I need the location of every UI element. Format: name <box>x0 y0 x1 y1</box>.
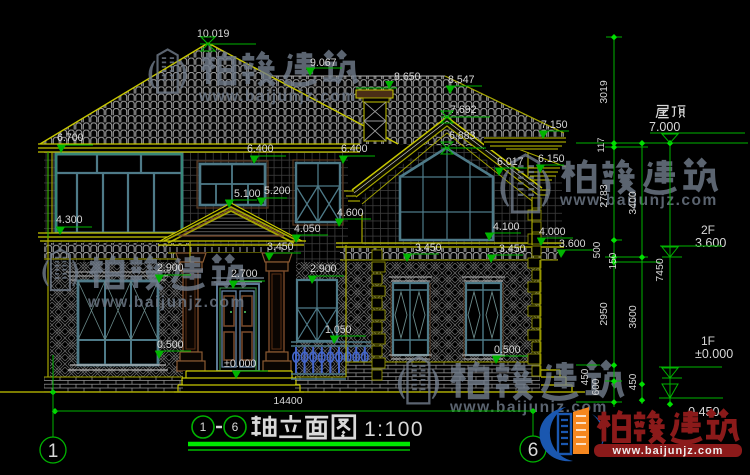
svg-text:6.700: 6.700 <box>57 132 84 144</box>
svg-text:450: 450 <box>580 368 591 385</box>
svg-text:3.450: 3.450 <box>267 241 294 253</box>
svg-text:6.400: 6.400 <box>247 143 274 155</box>
svg-text:2.700: 2.700 <box>231 268 258 280</box>
svg-text:3.450: 3.450 <box>499 243 526 255</box>
svg-text:6: 6 <box>232 420 239 434</box>
svg-text:www.baijunjz.com: www.baijunjz.com <box>198 88 357 105</box>
svg-text:2950: 2950 <box>598 302 610 326</box>
svg-text:7.692: 7.692 <box>450 104 477 116</box>
svg-text:117: 117 <box>596 137 607 152</box>
svg-text:5.200: 5.200 <box>264 185 291 197</box>
svg-text:7.150: 7.150 <box>541 119 568 131</box>
svg-text:3.600: 3.600 <box>559 238 586 250</box>
svg-text:1.050: 1.050 <box>325 324 352 336</box>
svg-text:7450: 7450 <box>654 258 666 282</box>
svg-text:6.150: 6.150 <box>538 153 565 165</box>
svg-text:4.600: 4.600 <box>337 207 364 219</box>
svg-text:www.baijunjz.com: www.baijunjz.com <box>612 445 724 457</box>
svg-text:500: 500 <box>592 241 603 258</box>
svg-text:0.500: 0.500 <box>157 339 184 351</box>
svg-text:1:100: 1:100 <box>364 418 424 441</box>
svg-text:8.547: 8.547 <box>448 74 475 86</box>
svg-text:2.900: 2.900 <box>310 263 337 275</box>
svg-text:1F: 1F <box>701 334 715 348</box>
svg-text:±0.000: ±0.000 <box>695 347 733 361</box>
svg-text:150: 150 <box>608 252 619 269</box>
svg-text:5.100: 5.100 <box>234 188 261 200</box>
svg-text:3019: 3019 <box>598 80 610 104</box>
svg-text:600: 600 <box>591 378 602 395</box>
svg-text:450: 450 <box>628 373 639 390</box>
svg-text:3400: 3400 <box>627 191 639 215</box>
svg-text:14400: 14400 <box>273 395 302 407</box>
svg-text:6.883: 6.883 <box>449 130 476 142</box>
svg-text:8.650: 8.650 <box>394 71 421 83</box>
svg-text:±0.000: ±0.000 <box>224 358 256 370</box>
svg-text:1: 1 <box>48 441 59 462</box>
svg-text:6.017: 6.017 <box>497 156 524 168</box>
svg-text:www.baijunjz.com: www.baijunjz.com <box>87 294 246 311</box>
svg-text:6.400: 6.400 <box>341 143 368 155</box>
svg-text:4.100: 4.100 <box>493 221 520 233</box>
svg-text:4.050: 4.050 <box>294 223 321 235</box>
svg-text:3.600: 3.600 <box>695 236 726 250</box>
svg-text:0.500: 0.500 <box>494 344 521 356</box>
svg-text:2.900: 2.900 <box>157 262 184 274</box>
svg-text:4.000: 4.000 <box>539 226 566 238</box>
svg-text:7.000: 7.000 <box>649 120 680 134</box>
svg-text:3.450: 3.450 <box>415 242 442 254</box>
svg-text:2F: 2F <box>701 223 715 237</box>
svg-text:2783: 2783 <box>598 184 610 208</box>
svg-text:4.300: 4.300 <box>56 214 83 226</box>
svg-text:1: 1 <box>200 420 207 434</box>
svg-text:9.067: 9.067 <box>310 57 337 69</box>
svg-text:6: 6 <box>528 440 539 461</box>
svg-text:3600: 3600 <box>627 305 639 329</box>
